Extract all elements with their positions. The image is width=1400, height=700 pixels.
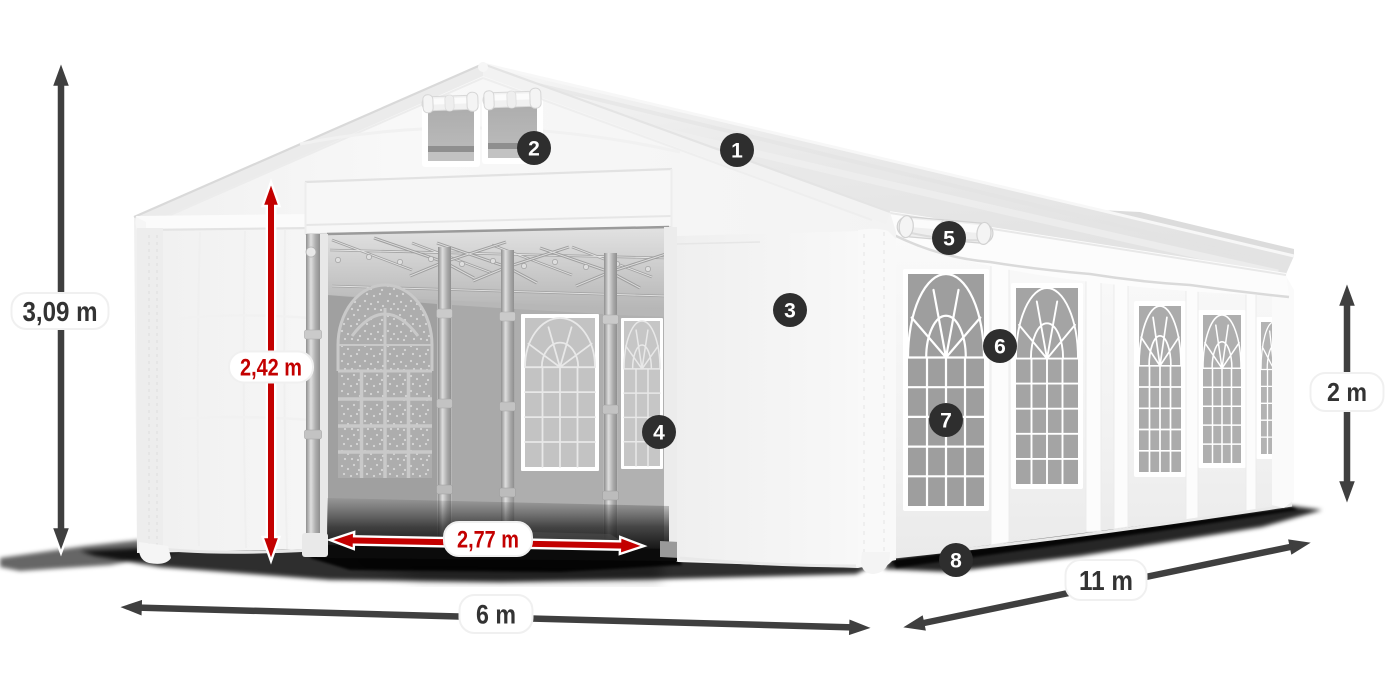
svg-text:5: 5 [943,228,955,251]
svg-text:7: 7 [940,410,952,433]
svg-text:2,77 m: 2,77 m [457,526,519,553]
svg-text:2 m: 2 m [1327,377,1367,407]
svg-text:1: 1 [731,140,743,163]
svg-text:11 m: 11 m [1079,565,1133,596]
svg-text:4: 4 [653,422,665,445]
svg-text:6: 6 [994,336,1006,359]
svg-text:2: 2 [528,138,540,161]
svg-text:6 m: 6 m [476,600,516,630]
svg-text:8: 8 [950,550,962,573]
svg-text:3: 3 [784,300,796,323]
svg-text:2,42 m: 2,42 m [240,354,302,381]
svg-text:3,09 m: 3,09 m [23,296,98,327]
